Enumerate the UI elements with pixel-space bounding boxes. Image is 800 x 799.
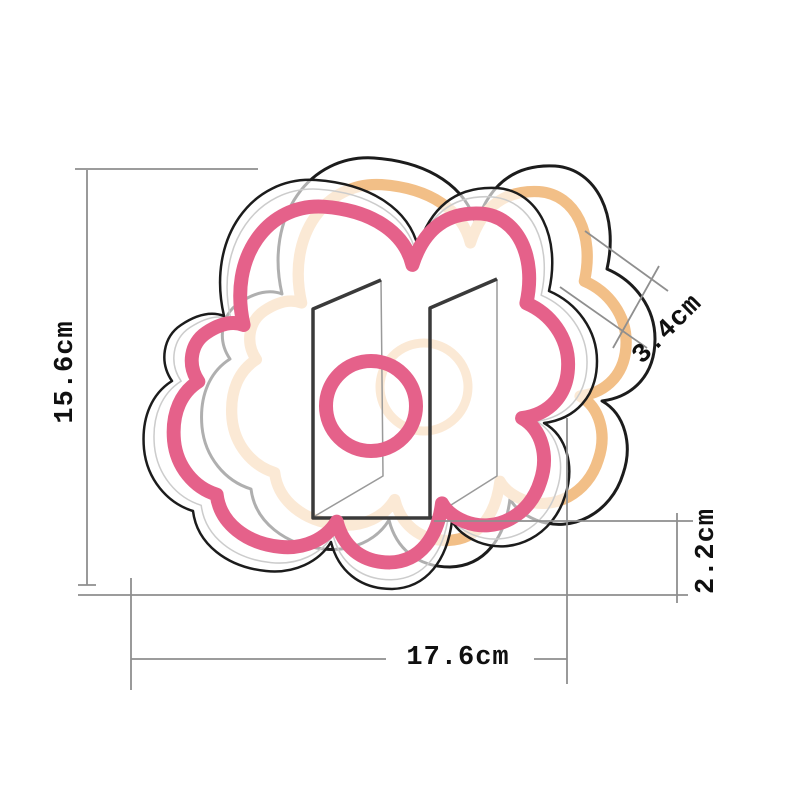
base-dimension-label: 2.2cm [692,508,722,594]
height-dimension-label: 15.6cm [51,320,81,423]
cloud-lamp-drawing [0,0,800,799]
dimension-diagram: 15.6cm 3.4cm 2.2cm 17.6cm [0,0,800,799]
front-panel [144,180,597,589]
width-dimension-label: 17.6cm [406,643,509,673]
